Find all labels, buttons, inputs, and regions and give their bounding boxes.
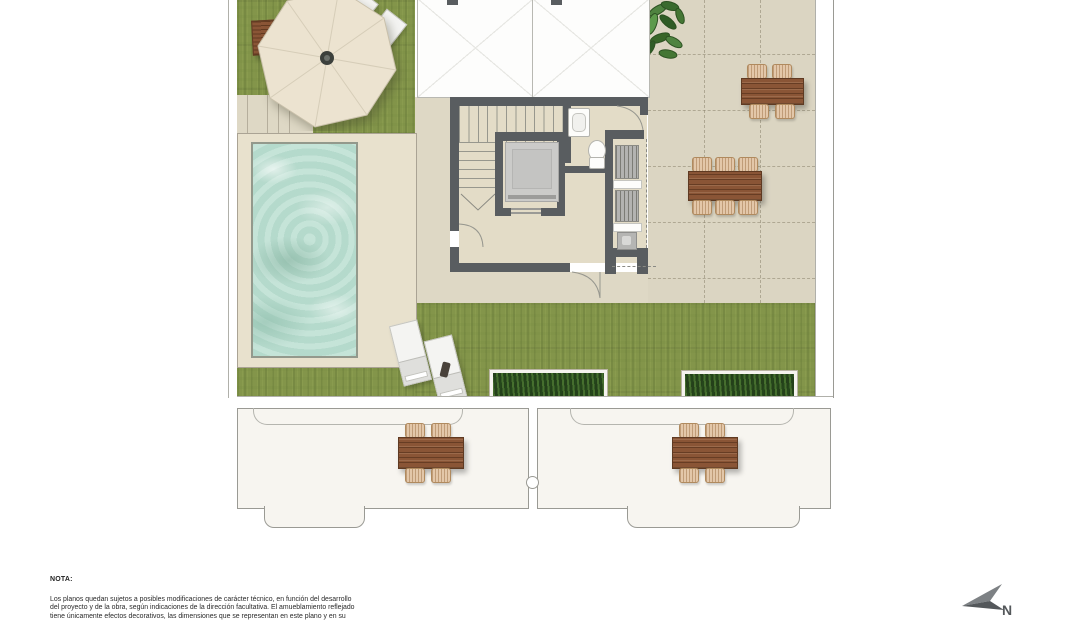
terrace-step-left [264, 506, 365, 528]
dining-chair [775, 104, 795, 119]
dining-chair [715, 157, 735, 172]
dining-chair [747, 64, 767, 79]
planter-box-right [682, 371, 797, 399]
door-swing-arcs [450, 97, 660, 307]
lawn-area-below-pool [237, 366, 415, 398]
dining-chair [692, 157, 712, 172]
parasol-umbrella [255, 0, 410, 131]
north-label: N [1002, 602, 1012, 618]
dining-chair [738, 200, 758, 215]
terrace-step-right [627, 506, 800, 528]
note-line: Los planos quedan sujetos a posibles mod… [50, 596, 355, 604]
dining-table [672, 437, 738, 469]
skylight-panel-right [532, 0, 650, 98]
dining-chair [679, 423, 699, 438]
dining-chair [738, 157, 758, 172]
wall-stub [447, 0, 458, 5]
dining-table [688, 171, 762, 201]
wall-stub [551, 0, 562, 5]
dining-chair [705, 423, 725, 438]
dining-chair [431, 423, 451, 438]
note-line: del proyecto y de la obra, según indicac… [50, 604, 355, 612]
skylight-panel-left [417, 0, 534, 98]
dining-chair [431, 468, 451, 483]
dining-table [398, 437, 464, 469]
dining-table [741, 78, 804, 105]
dining-chair [705, 468, 725, 483]
dining-chair [749, 104, 769, 119]
note-line: tiene únicamente efectos decorativos, la… [50, 613, 355, 620]
roof-terrace-floorplan: NOTA: Los planos quedan sujetos a posibl… [0, 0, 1070, 620]
divider-notch [526, 476, 539, 489]
lower-terrace-left [237, 408, 529, 509]
dining-chair [692, 200, 712, 215]
note: NOTA: Los planos quedan sujetos a posibl… [50, 576, 355, 620]
note-label: NOTA: [50, 576, 355, 583]
boundary-wall-right [815, 0, 834, 398]
paving-strip-left-of-core [415, 97, 450, 303]
dining-chair [405, 423, 425, 438]
dining-chair [679, 468, 699, 483]
dining-chair [772, 64, 792, 79]
dining-chair [715, 200, 735, 215]
swimming-pool [251, 142, 358, 358]
dining-chair [405, 468, 425, 483]
